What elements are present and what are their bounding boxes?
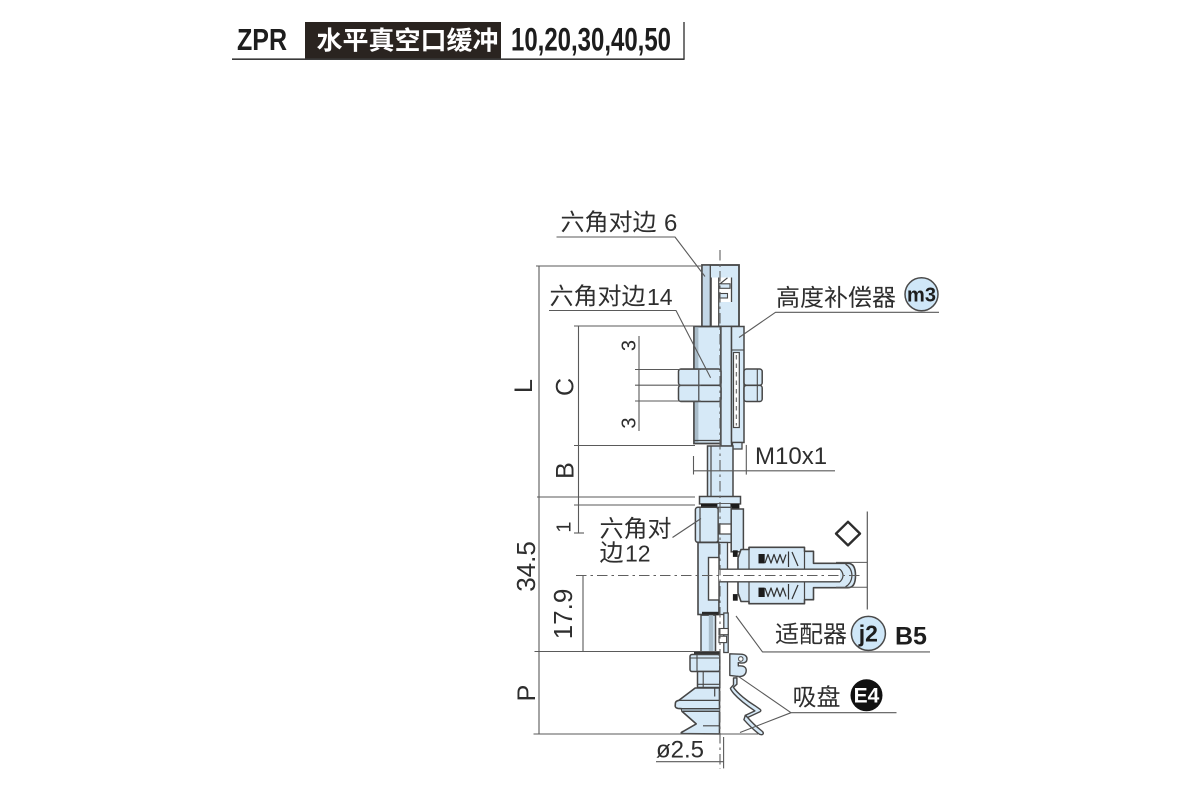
svg-text:M10x1: M10x1 xyxy=(755,443,827,470)
svg-text:ø2.5: ø2.5 xyxy=(656,737,704,764)
svg-text:B5: B5 xyxy=(895,623,927,651)
svg-text:L: L xyxy=(510,379,538,393)
svg-text:3: 3 xyxy=(619,417,641,428)
svg-text:3: 3 xyxy=(619,340,641,351)
svg-text:1: 1 xyxy=(554,521,576,532)
svg-text:P: P xyxy=(513,685,541,702)
svg-text:34.5: 34.5 xyxy=(511,541,541,592)
svg-text:10,20,30,40,50: 10,20,30,40,50 xyxy=(511,22,671,58)
svg-text:j2: j2 xyxy=(858,621,878,647)
svg-text:17.9: 17.9 xyxy=(548,589,578,640)
svg-text:m3: m3 xyxy=(907,285,936,307)
svg-text:6: 6 xyxy=(664,210,677,237)
svg-text:B: B xyxy=(552,462,580,479)
svg-text:E4: E4 xyxy=(854,685,880,708)
svg-text:C: C xyxy=(552,378,580,396)
svg-text:ZPR: ZPR xyxy=(237,22,287,57)
svg-text:14: 14 xyxy=(647,284,673,310)
svg-text:12: 12 xyxy=(625,541,651,567)
